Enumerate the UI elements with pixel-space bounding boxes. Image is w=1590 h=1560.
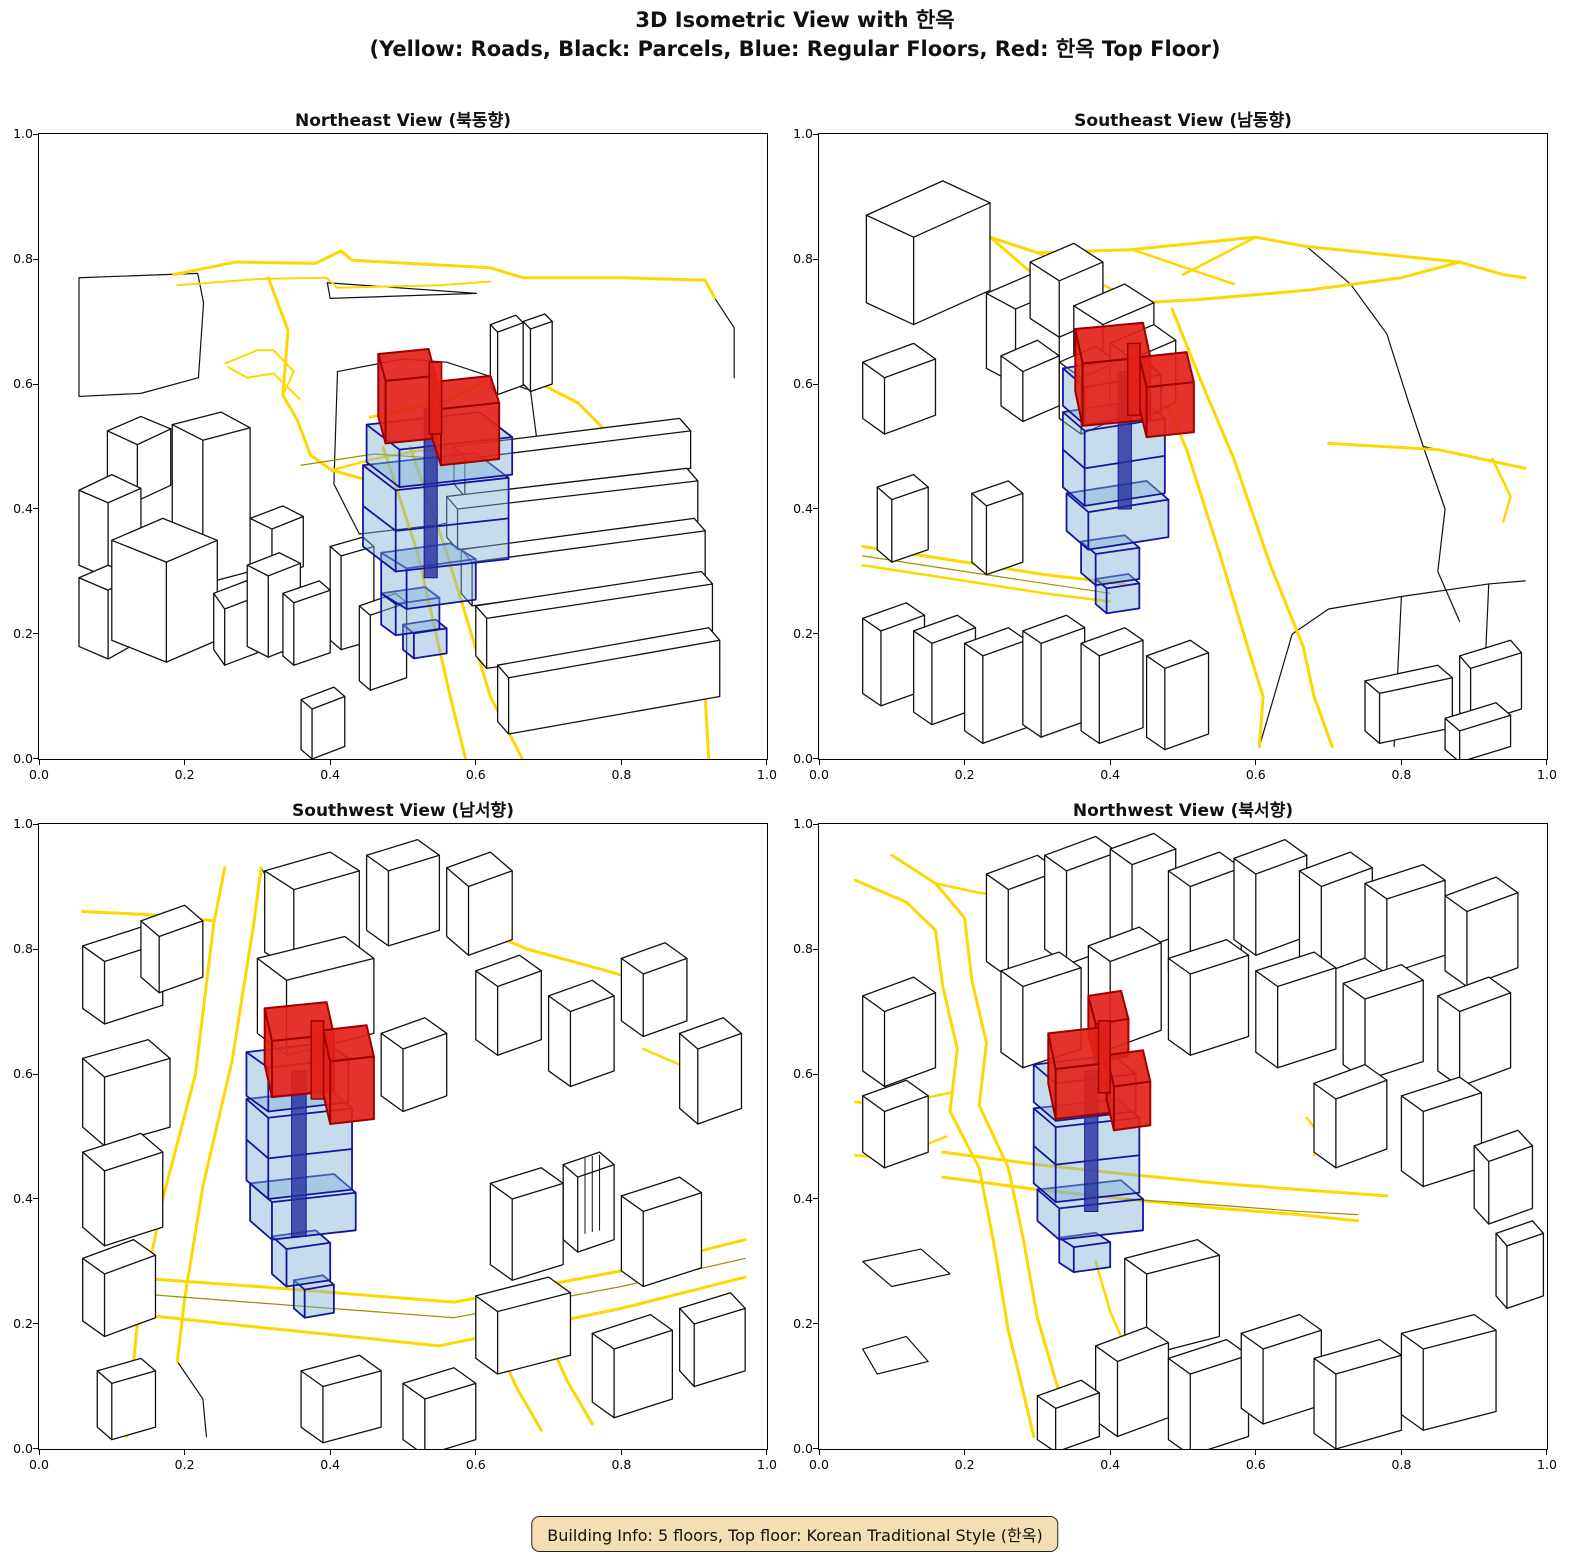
y-tick-mark	[813, 134, 818, 135]
y-tick-label: 0.4	[771, 1191, 813, 1206]
y-tick-mark	[813, 508, 818, 509]
subplot-northeast-view: Northeast View (북동향) 0.00.00.20.20.40.40…	[38, 133, 768, 760]
y-tick-label: 0.2	[0, 626, 33, 641]
x-tick-mark	[184, 1450, 185, 1455]
y-tick-mark	[813, 384, 818, 385]
y-tick-mark	[33, 134, 38, 135]
y-tick-mark	[33, 508, 38, 509]
y-tick-label: 0.4	[0, 1191, 33, 1206]
scene-northeast	[39, 134, 767, 759]
y-tick-label: 1.0	[0, 816, 33, 831]
figure-title-line1: 3D Isometric View with 한옥	[0, 6, 1590, 35]
x-tick-mark	[819, 1450, 820, 1455]
y-tick-label: 0.4	[771, 501, 813, 516]
y-tick-mark	[33, 758, 38, 759]
subplot-southwest-view: Southwest View (남서향) 0.00.00.20.20.40.40…	[38, 823, 768, 1450]
y-tick-label: 0.6	[0, 376, 33, 391]
subplot-title-southwest: Southwest View (남서향)	[39, 796, 767, 821]
x-tick-label: 0.6	[458, 1457, 494, 1472]
x-tick-mark	[964, 1450, 965, 1455]
x-tick-label: 0.6	[458, 767, 494, 782]
y-tick-mark	[813, 949, 818, 950]
x-tick-label: 0.2	[947, 767, 983, 782]
x-tick-mark	[766, 1450, 767, 1455]
x-tick-label: 0.8	[603, 1457, 639, 1472]
scene-southeast	[819, 134, 1547, 759]
x-tick-mark	[1401, 760, 1402, 765]
x-tick-label: 0.0	[21, 1457, 57, 1472]
x-tick-mark	[39, 760, 40, 765]
y-tick-mark	[33, 824, 38, 825]
x-tick-mark	[475, 760, 476, 765]
x-tick-label: 0.6	[1238, 1457, 1274, 1472]
y-tick-mark	[813, 633, 818, 634]
y-tick-mark	[33, 949, 38, 950]
subplot-southeast-view: Southeast View (남동향) 0.00.00.20.20.40.40…	[818, 133, 1548, 760]
x-tick-mark	[1110, 1450, 1111, 1455]
y-tick-mark	[813, 1074, 818, 1075]
figure-canvas: { "title": { "line1": "3D Isometric View…	[0, 0, 1590, 1560]
subplot-title-southeast: Southeast View (남동향)	[819, 106, 1547, 131]
x-tick-mark	[330, 760, 331, 765]
x-tick-label: 0.4	[312, 767, 348, 782]
x-tick-label: 1.0	[1529, 767, 1565, 782]
x-tick-label: 0.4	[1092, 1457, 1128, 1472]
x-tick-label: 0.8	[603, 767, 639, 782]
scene-northwest	[819, 824, 1547, 1449]
x-tick-label: 0.2	[167, 1457, 203, 1472]
y-tick-mark	[33, 1448, 38, 1449]
scene-southwest	[39, 824, 767, 1449]
x-tick-mark	[1401, 1450, 1402, 1455]
x-tick-label: 0.0	[21, 767, 57, 782]
y-tick-label: 0.0	[771, 1441, 813, 1456]
x-tick-mark	[621, 760, 622, 765]
y-tick-mark	[33, 633, 38, 634]
y-tick-label: 1.0	[0, 126, 33, 141]
subplot-title-northwest: Northwest View (북서향)	[819, 796, 1547, 821]
x-tick-label: 0.4	[1092, 767, 1128, 782]
x-tick-label: 1.0	[1529, 1457, 1565, 1472]
x-tick-mark	[39, 1450, 40, 1455]
x-tick-label: 0.0	[801, 1457, 837, 1472]
subplot-northwest-view: Northwest View (북서향) 0.00.00.20.20.40.40…	[818, 823, 1548, 1450]
y-tick-mark	[813, 259, 818, 260]
figure-title-line2: (Yellow: Roads, Black: Parcels, Blue: Re…	[0, 35, 1590, 64]
x-tick-label: 0.0	[801, 767, 837, 782]
y-tick-label: 0.8	[771, 251, 813, 266]
y-tick-mark	[33, 259, 38, 260]
y-tick-mark	[813, 758, 818, 759]
y-tick-label: 0.6	[771, 376, 813, 391]
y-tick-label: 0.6	[771, 1066, 813, 1081]
subplot-title-northeast: Northeast View (북동향)	[39, 106, 767, 131]
y-tick-label: 0.8	[0, 941, 33, 956]
x-tick-mark	[1546, 760, 1547, 765]
y-tick-label: 1.0	[771, 816, 813, 831]
x-tick-mark	[819, 760, 820, 765]
x-tick-mark	[1546, 1450, 1547, 1455]
y-tick-label: 0.8	[771, 941, 813, 956]
y-tick-label: 0.2	[771, 626, 813, 641]
x-tick-mark	[475, 1450, 476, 1455]
y-tick-label: 1.0	[771, 126, 813, 141]
x-tick-label: 1.0	[749, 1457, 785, 1472]
x-tick-mark	[1255, 760, 1256, 765]
y-tick-label: 0.8	[0, 251, 33, 266]
x-tick-mark	[621, 1450, 622, 1455]
y-tick-label: 0.0	[0, 751, 33, 766]
y-tick-mark	[33, 1198, 38, 1199]
y-tick-mark	[33, 1074, 38, 1075]
y-tick-mark	[813, 1198, 818, 1199]
x-tick-label: 0.2	[947, 1457, 983, 1472]
figure-title: 3D Isometric View with 한옥 (Yellow: Roads…	[0, 6, 1590, 65]
y-tick-label: 0.6	[0, 1066, 33, 1081]
x-tick-mark	[1255, 1450, 1256, 1455]
x-tick-label: 0.4	[312, 1457, 348, 1472]
y-tick-mark	[813, 1323, 818, 1324]
y-tick-mark	[813, 824, 818, 825]
y-tick-mark	[33, 384, 38, 385]
x-tick-label: 0.2	[167, 767, 203, 782]
y-tick-label: 0.0	[0, 1441, 33, 1456]
x-tick-label: 0.8	[1383, 767, 1419, 782]
x-tick-label: 0.6	[1238, 767, 1274, 782]
y-tick-label: 0.4	[0, 501, 33, 516]
x-tick-mark	[330, 1450, 331, 1455]
y-tick-label: 0.2	[771, 1316, 813, 1331]
y-tick-mark	[813, 1448, 818, 1449]
x-tick-mark	[964, 760, 965, 765]
x-tick-label: 0.8	[1383, 1457, 1419, 1472]
y-tick-label: 0.2	[0, 1316, 33, 1331]
building-info-box: Building Info: 5 floors, Top floor: Kore…	[531, 1516, 1058, 1552]
x-tick-label: 1.0	[749, 767, 785, 782]
x-tick-mark	[766, 760, 767, 765]
y-tick-mark	[33, 1323, 38, 1324]
x-tick-mark	[1110, 760, 1111, 765]
x-tick-mark	[184, 760, 185, 765]
y-tick-label: 0.0	[771, 751, 813, 766]
